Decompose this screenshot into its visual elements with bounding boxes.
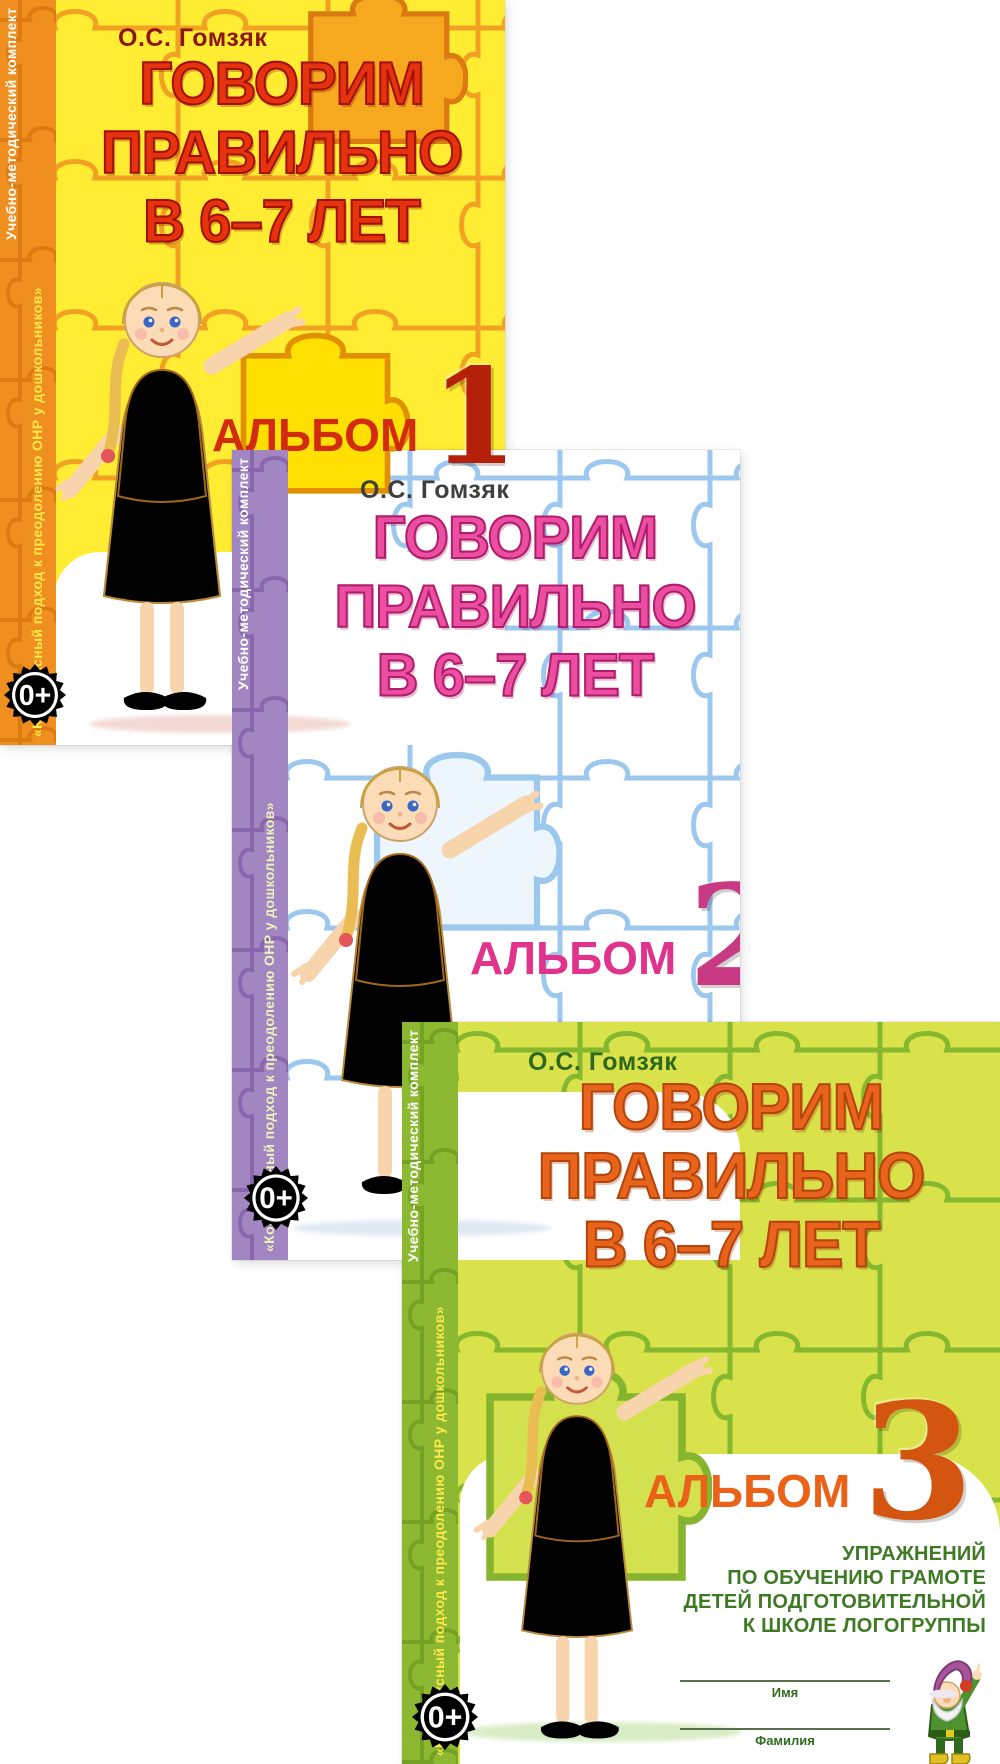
album-subtitle: УПРАЖНЕНИЙ ПО ОБУЧЕНИЮ ГРАМОТЕ ДЕТЕЙ ПОД… — [684, 1542, 986, 1638]
author-name: О.С. Гомзяк — [118, 24, 267, 53]
sidebar-vertical-text-quote: «Комплексный подход к преодолению ОНР у … — [29, 8, 53, 737]
title-line: ПРАВИЛЬНО — [294, 573, 736, 642]
name-line — [680, 1680, 890, 1682]
title-line: В 6–7 ЛЕТ — [468, 1211, 994, 1280]
book-set-image: .g1 .jk{stroke:#f0a32c;fill:#f0a32c}.g1 … — [0, 0, 1000, 1764]
name-signature-field: Имя — [680, 1680, 890, 1700]
surname-label: Фамилия — [680, 1733, 890, 1748]
author-name: О.С. Гомзяк — [360, 476, 509, 505]
age-badge: .b2 polygon{fill:#d6252b}.b2 .inner{fill… — [244, 1166, 308, 1230]
subtitle-line: УПРАЖНЕНИЙ — [684, 1542, 986, 1566]
album-word: АЛЬБОМ — [470, 935, 676, 981]
sidebar-vertical-text-top: Учебно-методический комплект — [405, 1030, 429, 1756]
album-label-row: АЛЬБОМ 2 — [470, 878, 740, 997]
album-word: АЛЬБОМ — [644, 1468, 850, 1514]
album-number: 1 — [430, 362, 505, 474]
age-badge: .b3 polygon{fill:#d6252b}.b3 .inner{fill… — [412, 1684, 478, 1750]
surname-line — [680, 1728, 890, 1730]
age-badge-text: 0+ — [259, 1182, 293, 1215]
series-title: ГОВОРИМ ПРАВИЛЬНО В 6–7 ЛЕТ — [62, 50, 501, 256]
series-title: ГОВОРИМ ПРАВИЛЬНО В 6–7 ЛЕТ — [294, 504, 736, 710]
sidebar-vertical-text-top: Учебно-методический комплект — [3, 8, 27, 737]
age-badge-text: 0+ — [19, 680, 52, 712]
album-number: 3 — [862, 1394, 973, 1530]
subtitle-line: ПО ОБУЧЕНИЮ ГРАМОТЕ — [684, 1566, 986, 1590]
age-badge-text: 0+ — [428, 1702, 463, 1735]
title-line: ПРАВИЛЬНО — [468, 1143, 994, 1212]
sidebar-vertical-text-quote: «Комплексный подход к преодолению ОНР у … — [431, 1030, 455, 1756]
gnome-illustration — [902, 1650, 992, 1764]
title-line: ПРАВИЛЬНО — [62, 119, 501, 188]
name-label: Имя — [680, 1685, 890, 1700]
title-line: В 6–7 ЛЕТ — [62, 187, 501, 256]
title-line: ГОВОРИМ — [62, 50, 501, 119]
album-number: 2 — [688, 878, 740, 997]
sidebar-vertical-text-quote: «Комплексный подход к преодолению ОНР у … — [261, 458, 285, 1252]
title-line: ГОВОРИМ — [468, 1074, 994, 1143]
subtitle-line: ДЕТЕЙ ПОДГОТОВИТЕЛЬНОЙ — [684, 1590, 986, 1614]
subtitle-line: К ШКОЛЕ ЛОГОГРУППЫ — [684, 1614, 986, 1638]
surname-signature-field: Фамилия — [680, 1728, 890, 1748]
album-label-row: АЛЬБОМ 3 — [644, 1394, 974, 1530]
age-badge: .b1 polygon{fill:#3f9e41}.b1 .inner{fill… — [4, 664, 66, 726]
book-cover-album-3: .g3 .jk{stroke:#f08c1e;fill:#f08c1e}.g3 … — [402, 1022, 1000, 1764]
series-title: ГОВОРИМ ПРАВИЛЬНО В 6–7 ЛЕТ — [468, 1074, 994, 1280]
sidebar-vertical-text-top: Учебно-методический комплект — [235, 458, 259, 1252]
title-line: В 6–7 ЛЕТ — [294, 641, 736, 710]
title-line: ГОВОРИМ — [294, 504, 736, 573]
